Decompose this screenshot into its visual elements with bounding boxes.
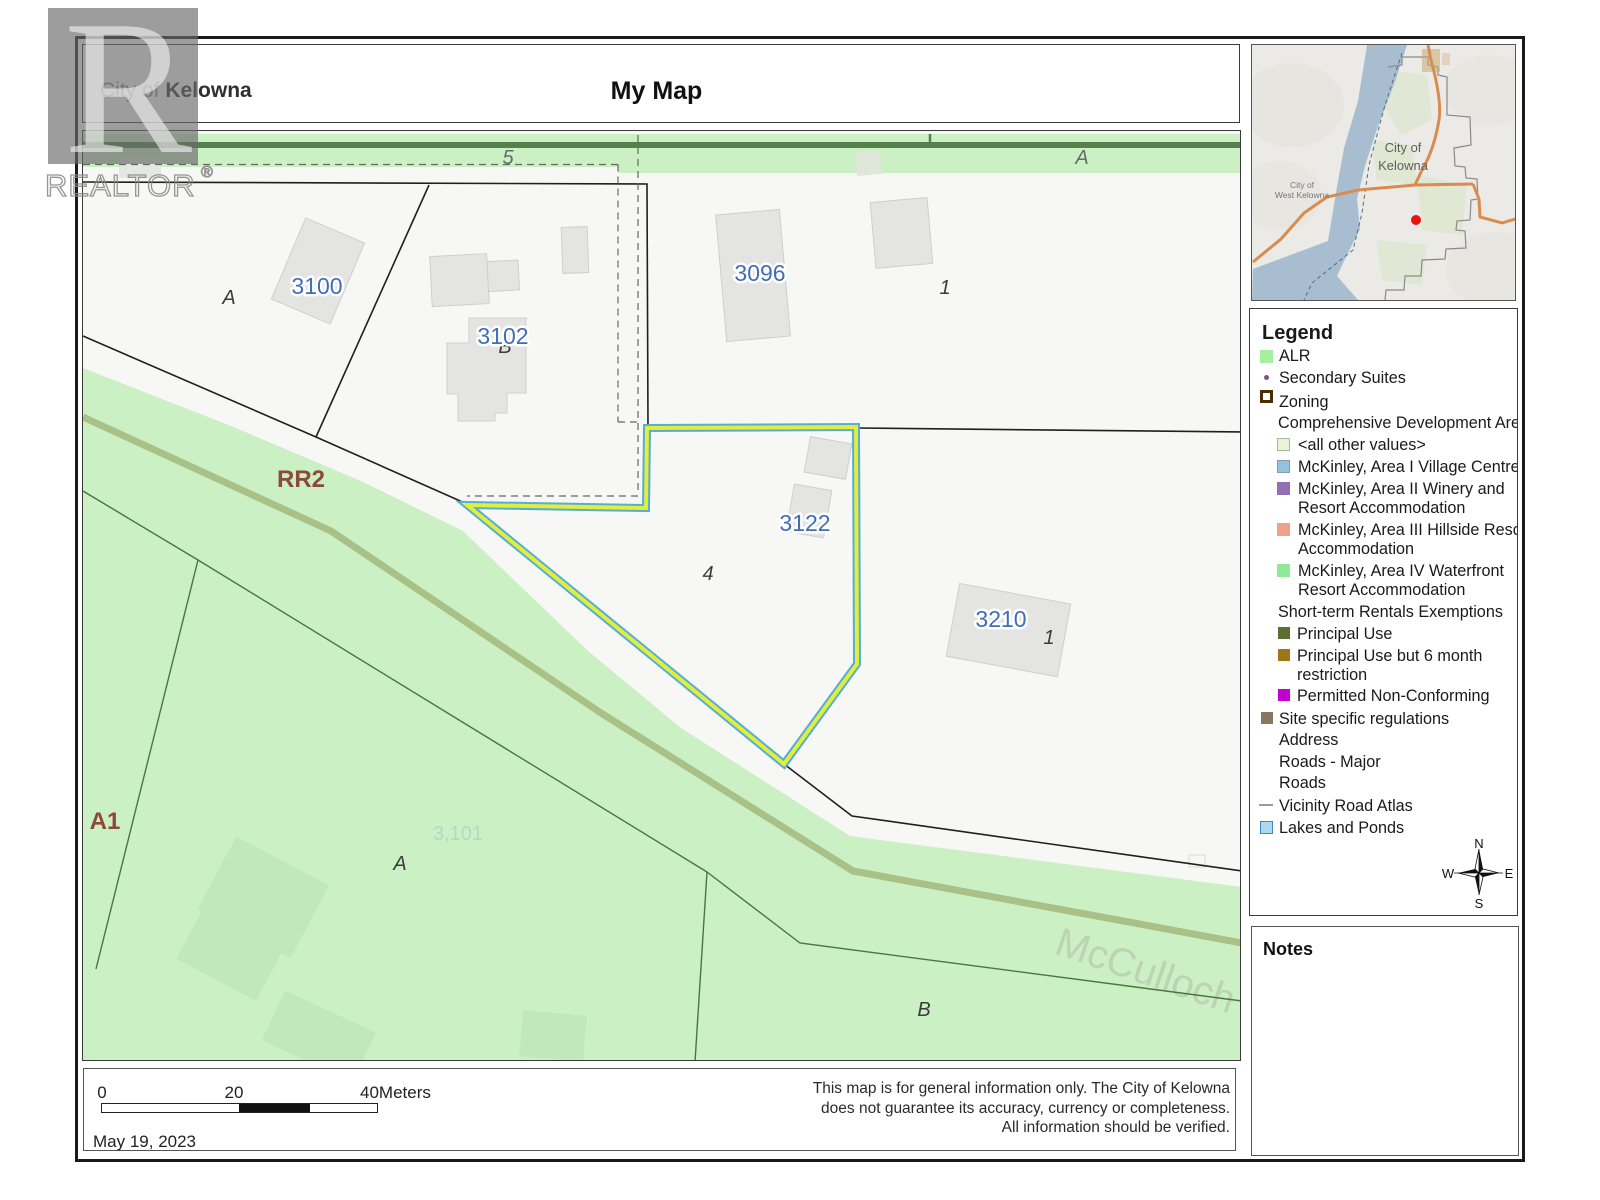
svg-text:®: ® bbox=[201, 164, 213, 181]
svg-text:RR2: RR2 bbox=[277, 466, 325, 493]
svg-text:3122: 3122 bbox=[779, 510, 830, 536]
svg-text:REALTOR: REALTOR bbox=[45, 168, 196, 203]
svg-text:W: W bbox=[1442, 866, 1455, 881]
svg-text:S: S bbox=[1475, 896, 1484, 911]
svg-text:R: R bbox=[64, 0, 192, 194]
svg-text:City of: City of bbox=[1290, 180, 1315, 190]
svg-text:A: A bbox=[1074, 147, 1088, 169]
svg-text:West Kelowna: West Kelowna bbox=[1275, 190, 1329, 200]
svg-text:City of: City of bbox=[1385, 140, 1422, 155]
svg-text:4: 4 bbox=[702, 563, 713, 585]
svg-text:A: A bbox=[392, 853, 406, 875]
svg-text:1: 1 bbox=[939, 277, 950, 299]
svg-text:Kelowna: Kelowna bbox=[1378, 158, 1429, 173]
svg-text:3,101: 3,101 bbox=[433, 823, 483, 845]
svg-text:E: E bbox=[1505, 866, 1514, 881]
svg-text:N: N bbox=[1474, 836, 1483, 851]
svg-text:A: A bbox=[221, 287, 235, 309]
svg-text:3100: 3100 bbox=[291, 273, 342, 299]
svg-text:3102: 3102 bbox=[477, 323, 528, 349]
svg-text:1: 1 bbox=[1043, 627, 1054, 649]
svg-text:A1: A1 bbox=[90, 808, 121, 835]
svg-text:5: 5 bbox=[502, 147, 514, 169]
svg-text:3096: 3096 bbox=[734, 260, 785, 286]
svg-text:3210: 3210 bbox=[975, 606, 1026, 632]
svg-text:B: B bbox=[917, 999, 930, 1021]
